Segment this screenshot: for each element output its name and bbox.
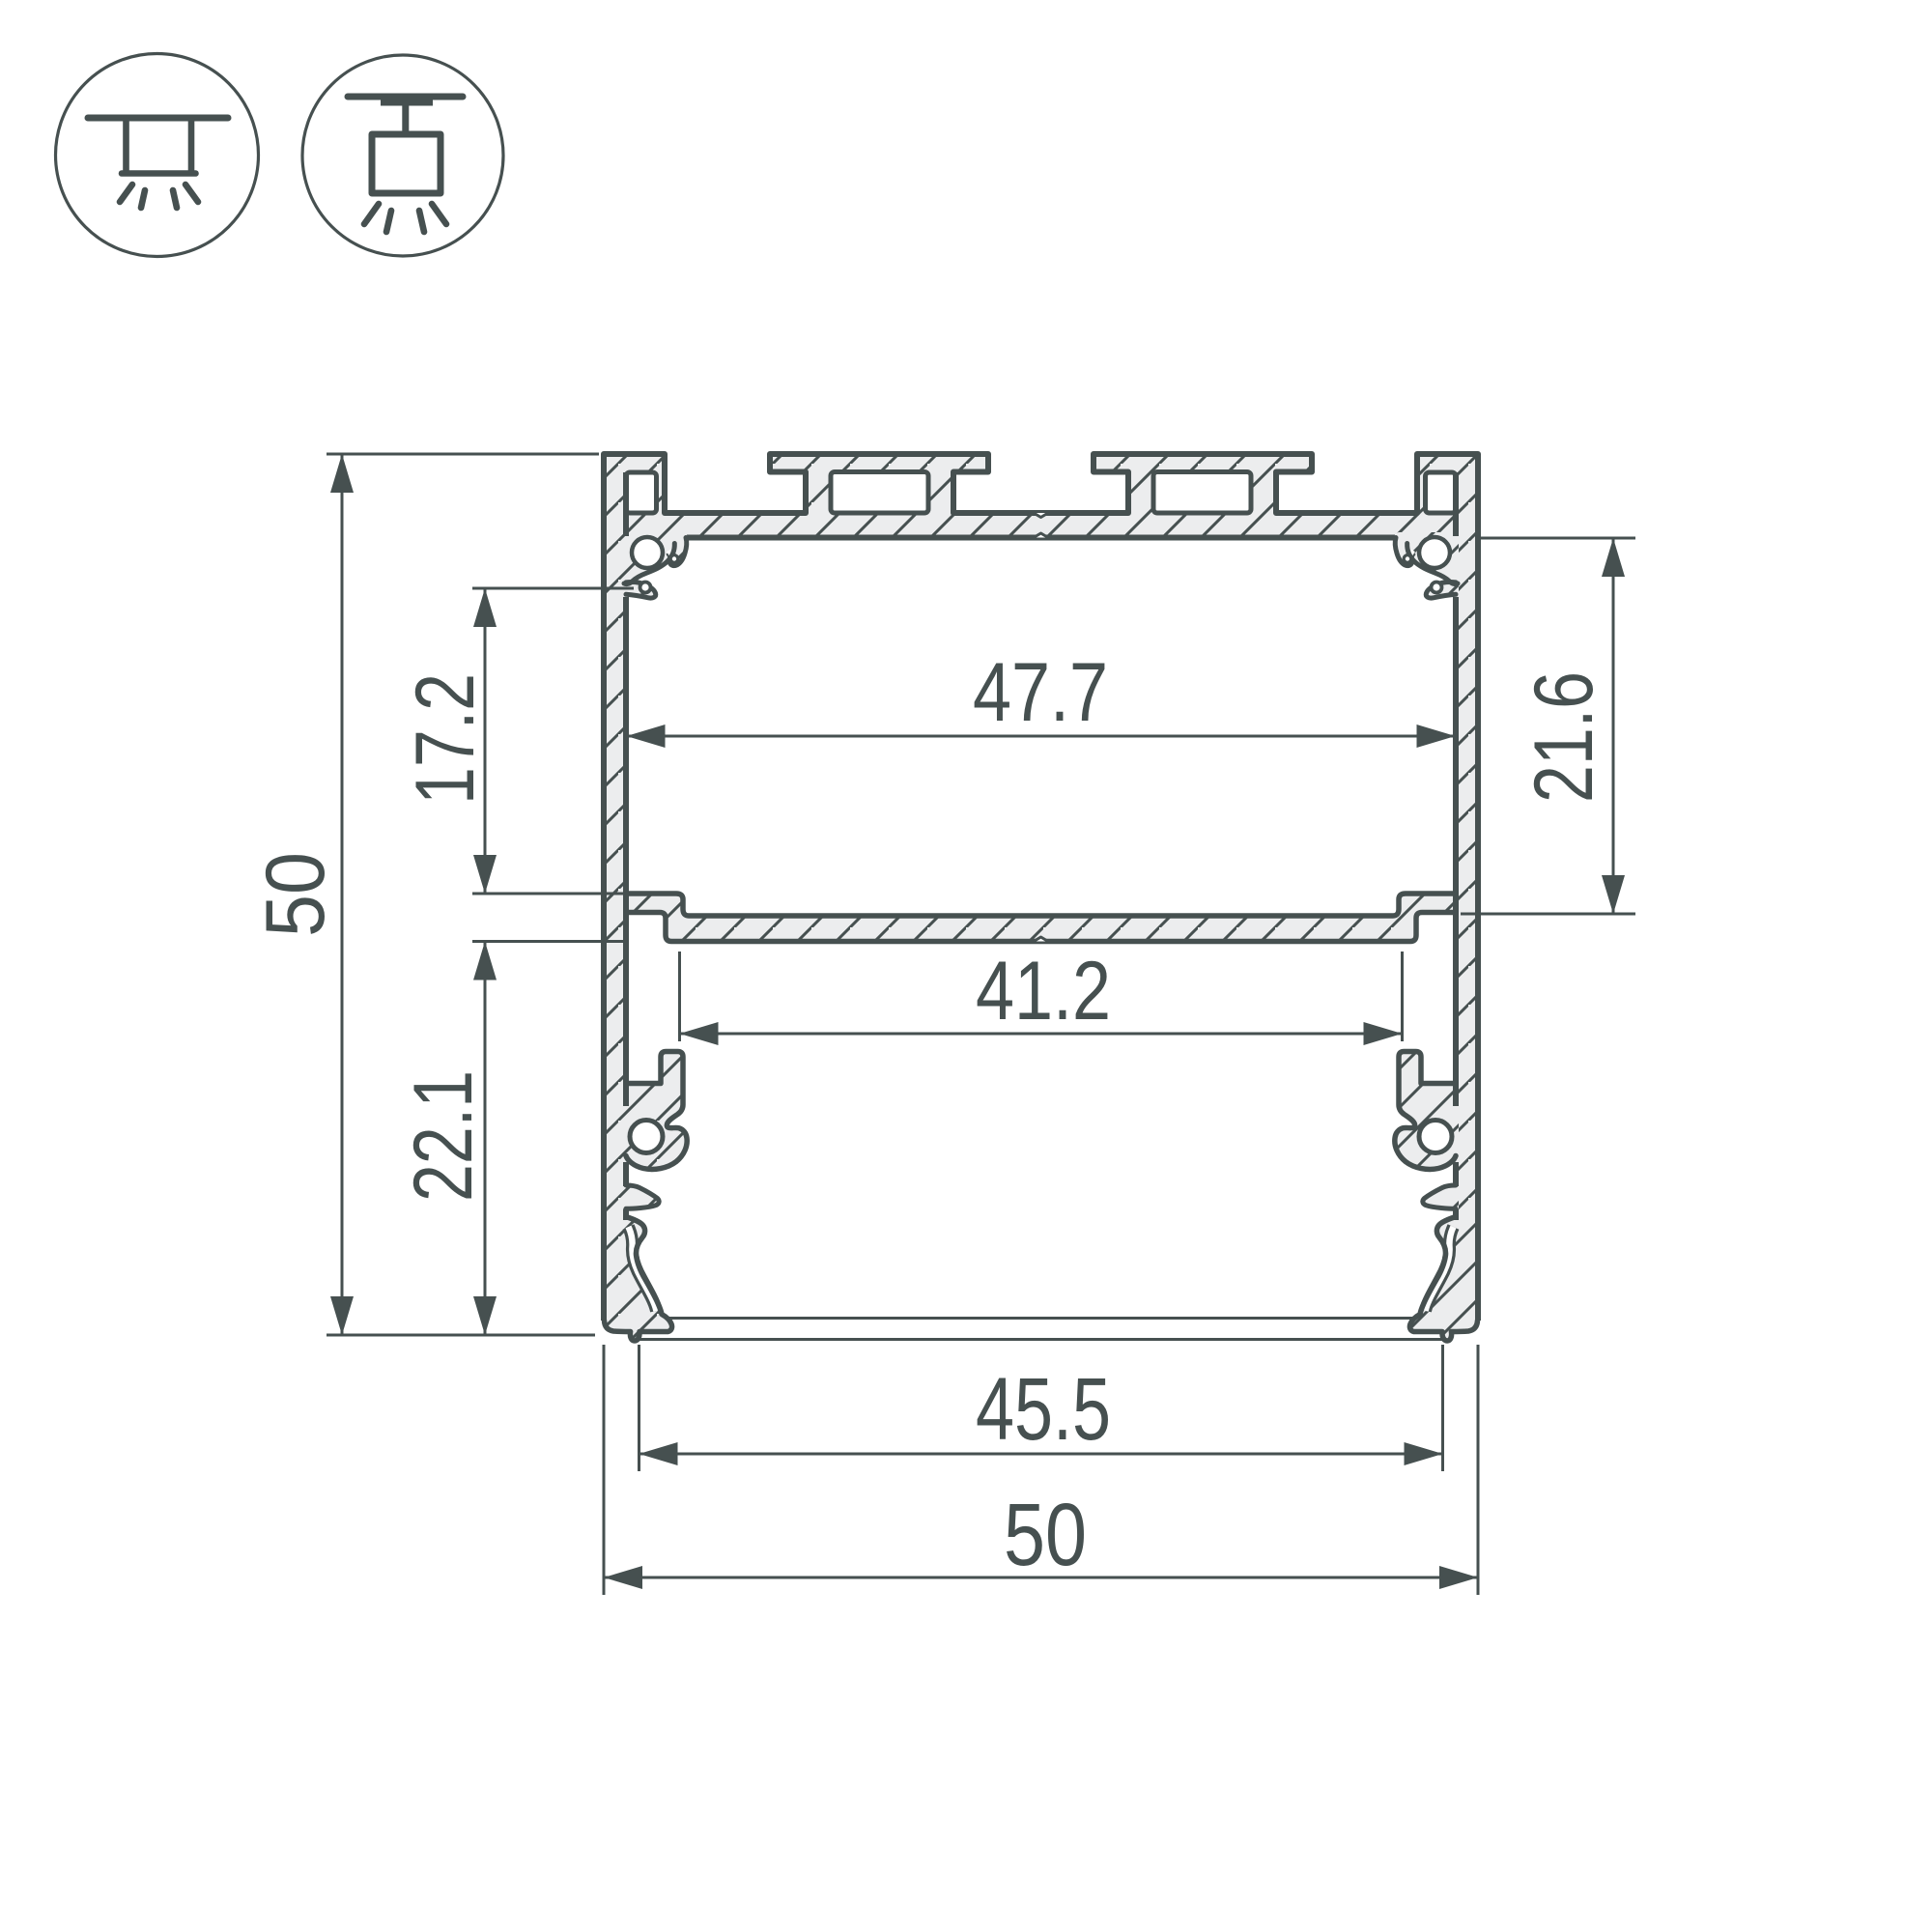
svg-text:47.7: 47.7: [973, 646, 1108, 739]
svg-text:17.2: 17.2: [399, 673, 492, 805]
svg-text:22.1: 22.1: [397, 1070, 490, 1202]
svg-text:21.6: 21.6: [1518, 671, 1610, 803]
svg-text:45.5: 45.5: [976, 1360, 1111, 1459]
svg-text:50: 50: [249, 852, 342, 937]
svg-text:41.2: 41.2: [976, 945, 1111, 1037]
svg-text:50: 50: [1004, 1486, 1087, 1584]
